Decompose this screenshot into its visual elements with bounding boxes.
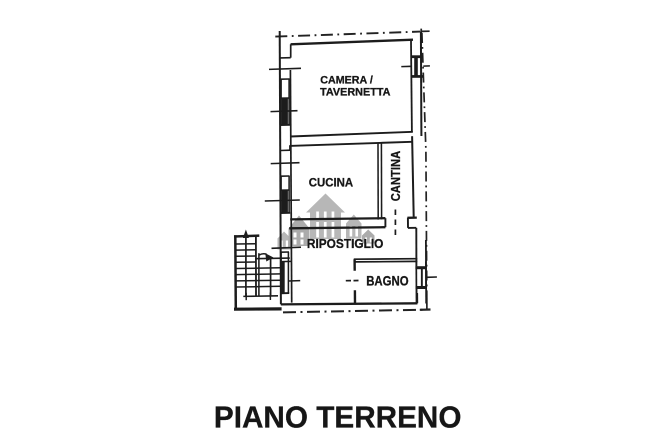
svg-text:CANTINA: CANTINA: [388, 150, 403, 201]
svg-text:TAVERNETTA: TAVERNETTA: [320, 86, 391, 98]
svg-text:CAMERA /: CAMERA /: [320, 74, 373, 86]
svg-text:RIPOSTIGLIO: RIPOSTIGLIO: [307, 236, 384, 251]
svg-text:BAGNO: BAGNO: [366, 274, 408, 289]
svg-text:CUCINA: CUCINA: [309, 175, 353, 189]
svg-text:PIANO TERRENO: PIANO TERRENO: [214, 401, 462, 435]
